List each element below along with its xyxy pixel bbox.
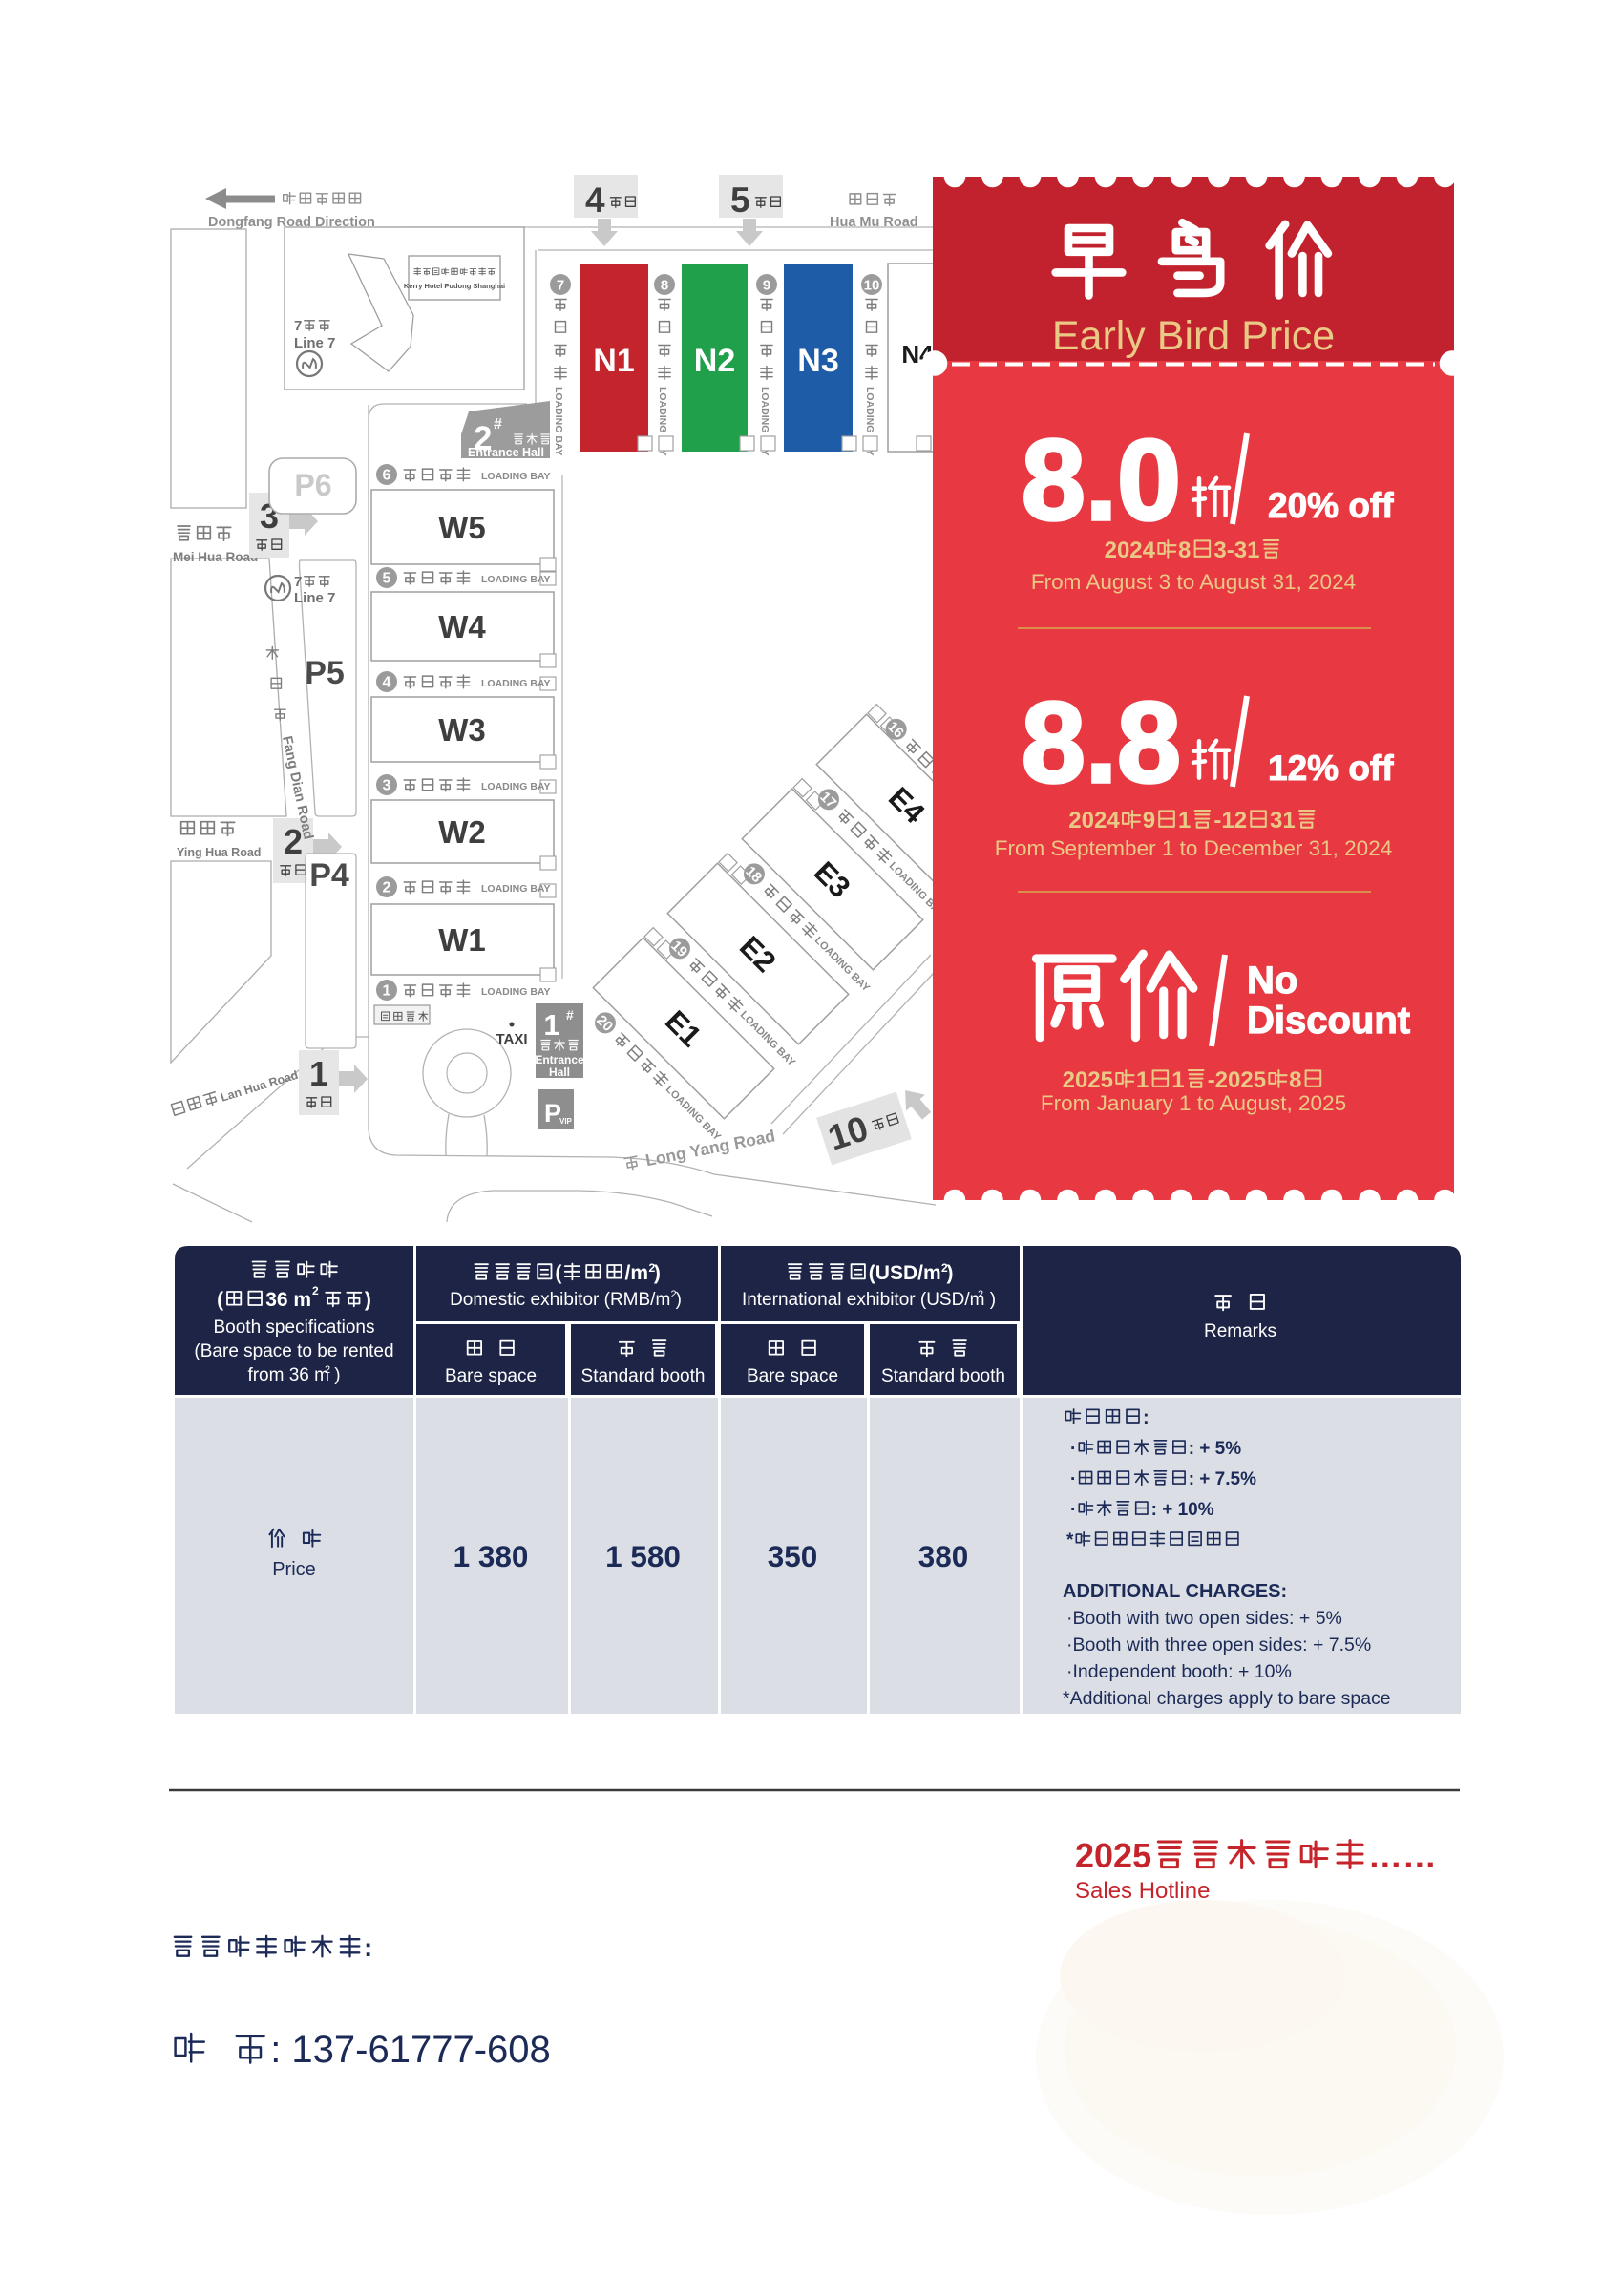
svg-text:·Booth with three open sides:: ·Booth with three open sides: + 7.5% xyxy=(1066,1635,1371,1656)
svg-text:7: 7 xyxy=(294,574,302,590)
svg-text:Kerry Hotel Pudong Shanghai: Kerry Hotel Pudong Shanghai xyxy=(404,282,505,290)
svg-text:Entrance: Entrance xyxy=(535,1053,584,1066)
svg-text:N1: N1 xyxy=(593,343,634,379)
svg-text:3-31: 3-31 xyxy=(1213,538,1259,563)
svg-text:: + 10%: : + 10% xyxy=(1151,1500,1214,1520)
svg-text:-12: -12 xyxy=(1213,808,1247,833)
svg-text:Entrance Hall: Entrance Hall xyxy=(468,446,544,459)
svg-text:LOADING BAY: LOADING BAY xyxy=(481,986,551,998)
svg-text:2025: 2025 xyxy=(1063,1067,1113,1093)
svg-text:: 137-61777-608: : 137-61777-608 xyxy=(270,2029,551,2071)
svg-text:Bare space: Bare space xyxy=(445,1366,537,1386)
svg-text:8: 8 xyxy=(1289,1067,1301,1093)
svg-text:P4: P4 xyxy=(309,857,349,894)
svg-text:2: 2 xyxy=(978,1289,983,1300)
svg-text:From January 1 to August, 2025: From January 1 to August, 2025 xyxy=(1041,1091,1346,1115)
svg-text:P5: P5 xyxy=(305,655,345,691)
svg-text:(: ( xyxy=(217,1289,223,1311)
svg-text:2: 2 xyxy=(649,1261,656,1275)
svg-text::: : xyxy=(364,1933,372,1962)
svg-text:P6: P6 xyxy=(294,468,331,502)
svg-text:10: 10 xyxy=(864,278,880,294)
svg-text:*Additional charges apply to b: *Additional charges apply to bare space xyxy=(1063,1688,1391,1709)
svg-text:Standard booth: Standard booth xyxy=(581,1366,706,1386)
svg-text:Standard booth: Standard booth xyxy=(881,1366,1005,1386)
svg-text:Mei Hua Road: Mei Hua Road xyxy=(173,550,258,564)
svg-text:350: 350 xyxy=(768,1539,818,1573)
svg-text:1 580: 1 580 xyxy=(605,1539,681,1573)
svg-text:Line 7: Line 7 xyxy=(294,335,335,351)
svg-text:Sales Hotline: Sales Hotline xyxy=(1075,1878,1210,1904)
svg-text:#: # xyxy=(494,416,502,432)
svg-text:LOADING BAY: LOADING BAY xyxy=(481,781,551,792)
svg-text:2025: 2025 xyxy=(1075,1836,1151,1875)
svg-text:): ) xyxy=(365,1289,371,1311)
svg-text:2: 2 xyxy=(325,1364,330,1376)
svg-text:31: 31 xyxy=(1270,808,1296,833)
svg-text:1: 1 xyxy=(1136,1067,1149,1093)
svg-text:5: 5 xyxy=(730,180,750,220)
svg-text:International exhibitor (USD/m: International exhibitor (USD/m ) xyxy=(742,1290,996,1310)
svg-text:380: 380 xyxy=(918,1539,969,1573)
svg-text:W3: W3 xyxy=(438,712,486,748)
svg-text:12% off: 12% off xyxy=(1268,749,1394,788)
svg-text:From September 1 to December 3: From September 1 to December 31, 2024 xyxy=(995,836,1392,860)
svg-text:Lan Hua Road: Lan Hua Road xyxy=(219,1068,299,1105)
svg-text:Ying Hua Road: Ying Hua Road xyxy=(177,846,261,859)
svg-text:LOADING BAY: LOADING BAY xyxy=(481,574,551,585)
svg-text:8.0: 8.0 xyxy=(1022,416,1181,544)
svg-text:(Bare space to be rented: (Bare space to be rented xyxy=(194,1341,393,1361)
svg-text:N3: N3 xyxy=(797,343,838,379)
svg-text:1: 1 xyxy=(543,1008,559,1042)
svg-text:2024: 2024 xyxy=(1105,538,1156,563)
svg-text:2: 2 xyxy=(671,1289,677,1300)
svg-text:Booth specifications: Booth specifications xyxy=(214,1318,375,1338)
svg-text:#: # xyxy=(566,1007,574,1023)
svg-text:1: 1 xyxy=(383,983,391,1000)
svg-text:From August 3 to August 31, 20: From August 3 to August 31, 2024 xyxy=(1031,570,1356,594)
svg-text:4: 4 xyxy=(383,675,391,691)
svg-text:/m ): /m ) xyxy=(625,1262,661,1284)
svg-text:Discount: Discount xyxy=(1247,1000,1410,1042)
svg-text:7: 7 xyxy=(557,278,564,294)
svg-text:LOADING BAY: LOADING BAY xyxy=(553,387,564,456)
svg-text:Early Bird Price: Early Bird Price xyxy=(1052,313,1335,359)
svg-text:W1: W1 xyxy=(438,922,486,958)
svg-text:·: · xyxy=(1070,1469,1076,1489)
svg-text:Hall: Hall xyxy=(549,1065,570,1079)
svg-text:Domestic exhibitor (RMB/m ): Domestic exhibitor (RMB/m ) xyxy=(450,1290,682,1310)
svg-text:8: 8 xyxy=(661,278,668,294)
svg-text:LOADING BAY: LOADING BAY xyxy=(481,883,551,895)
svg-text:1: 1 xyxy=(1171,1067,1184,1093)
svg-text:4: 4 xyxy=(585,180,605,220)
svg-text:……: …… xyxy=(1368,1836,1437,1875)
svg-text:7: 7 xyxy=(294,318,302,334)
svg-text:8.8: 8.8 xyxy=(1022,679,1181,807)
svg-text:8: 8 xyxy=(1178,538,1191,563)
svg-text:2024: 2024 xyxy=(1068,808,1120,833)
svg-text:9: 9 xyxy=(1143,808,1155,833)
svg-text:5: 5 xyxy=(383,571,391,587)
svg-text:Bare space: Bare space xyxy=(747,1366,838,1386)
svg-text:20% off: 20% off xyxy=(1268,486,1394,525)
svg-text:9: 9 xyxy=(763,278,770,294)
svg-text:1: 1 xyxy=(1178,808,1191,833)
svg-text:*: * xyxy=(1066,1530,1074,1550)
svg-text:3: 3 xyxy=(383,778,391,794)
svg-text:TAXI: TAXI xyxy=(496,1031,527,1047)
svg-text:VIP: VIP xyxy=(559,1117,573,1126)
svg-text:6: 6 xyxy=(383,468,391,484)
svg-text:W5: W5 xyxy=(438,510,486,545)
svg-text:ADDITIONAL CHARGES:: ADDITIONAL CHARGES: xyxy=(1063,1581,1287,1602)
svg-text:1 380: 1 380 xyxy=(453,1539,529,1573)
svg-text:2: 2 xyxy=(312,1284,319,1297)
svg-text:1: 1 xyxy=(309,1054,328,1093)
svg-text:·: · xyxy=(1070,1439,1076,1459)
svg-text:: + 5%: : + 5% xyxy=(1189,1439,1242,1459)
svg-text:No: No xyxy=(1247,960,1297,1002)
svg-text:36 m: 36 m xyxy=(265,1289,311,1311)
svg-text:·Booth with two open sides: +: ·Booth with two open sides: + 5% xyxy=(1066,1608,1342,1629)
svg-text:2: 2 xyxy=(383,880,391,896)
svg-text:·Independent booth: + 10%: ·Independent booth: + 10% xyxy=(1066,1661,1292,1682)
svg-text:-2025: -2025 xyxy=(1208,1067,1266,1093)
svg-text:W4: W4 xyxy=(438,609,486,644)
svg-text:LOADING BAY: LOADING BAY xyxy=(481,678,551,689)
svg-text::: : xyxy=(1143,1407,1149,1428)
svg-text:W2: W2 xyxy=(438,814,486,850)
svg-text:Remarks: Remarks xyxy=(1204,1321,1276,1341)
svg-text:(: ( xyxy=(555,1262,561,1284)
svg-text:Price: Price xyxy=(272,1559,316,1580)
svg-text:N2: N2 xyxy=(694,343,735,379)
svg-text:: + 7.5%: : + 7.5% xyxy=(1189,1469,1256,1489)
svg-text:2: 2 xyxy=(941,1261,948,1275)
svg-text:LOADING BAY: LOADING BAY xyxy=(481,471,551,482)
svg-text:Line 7: Line 7 xyxy=(294,590,335,606)
svg-text:·: · xyxy=(1070,1500,1076,1520)
